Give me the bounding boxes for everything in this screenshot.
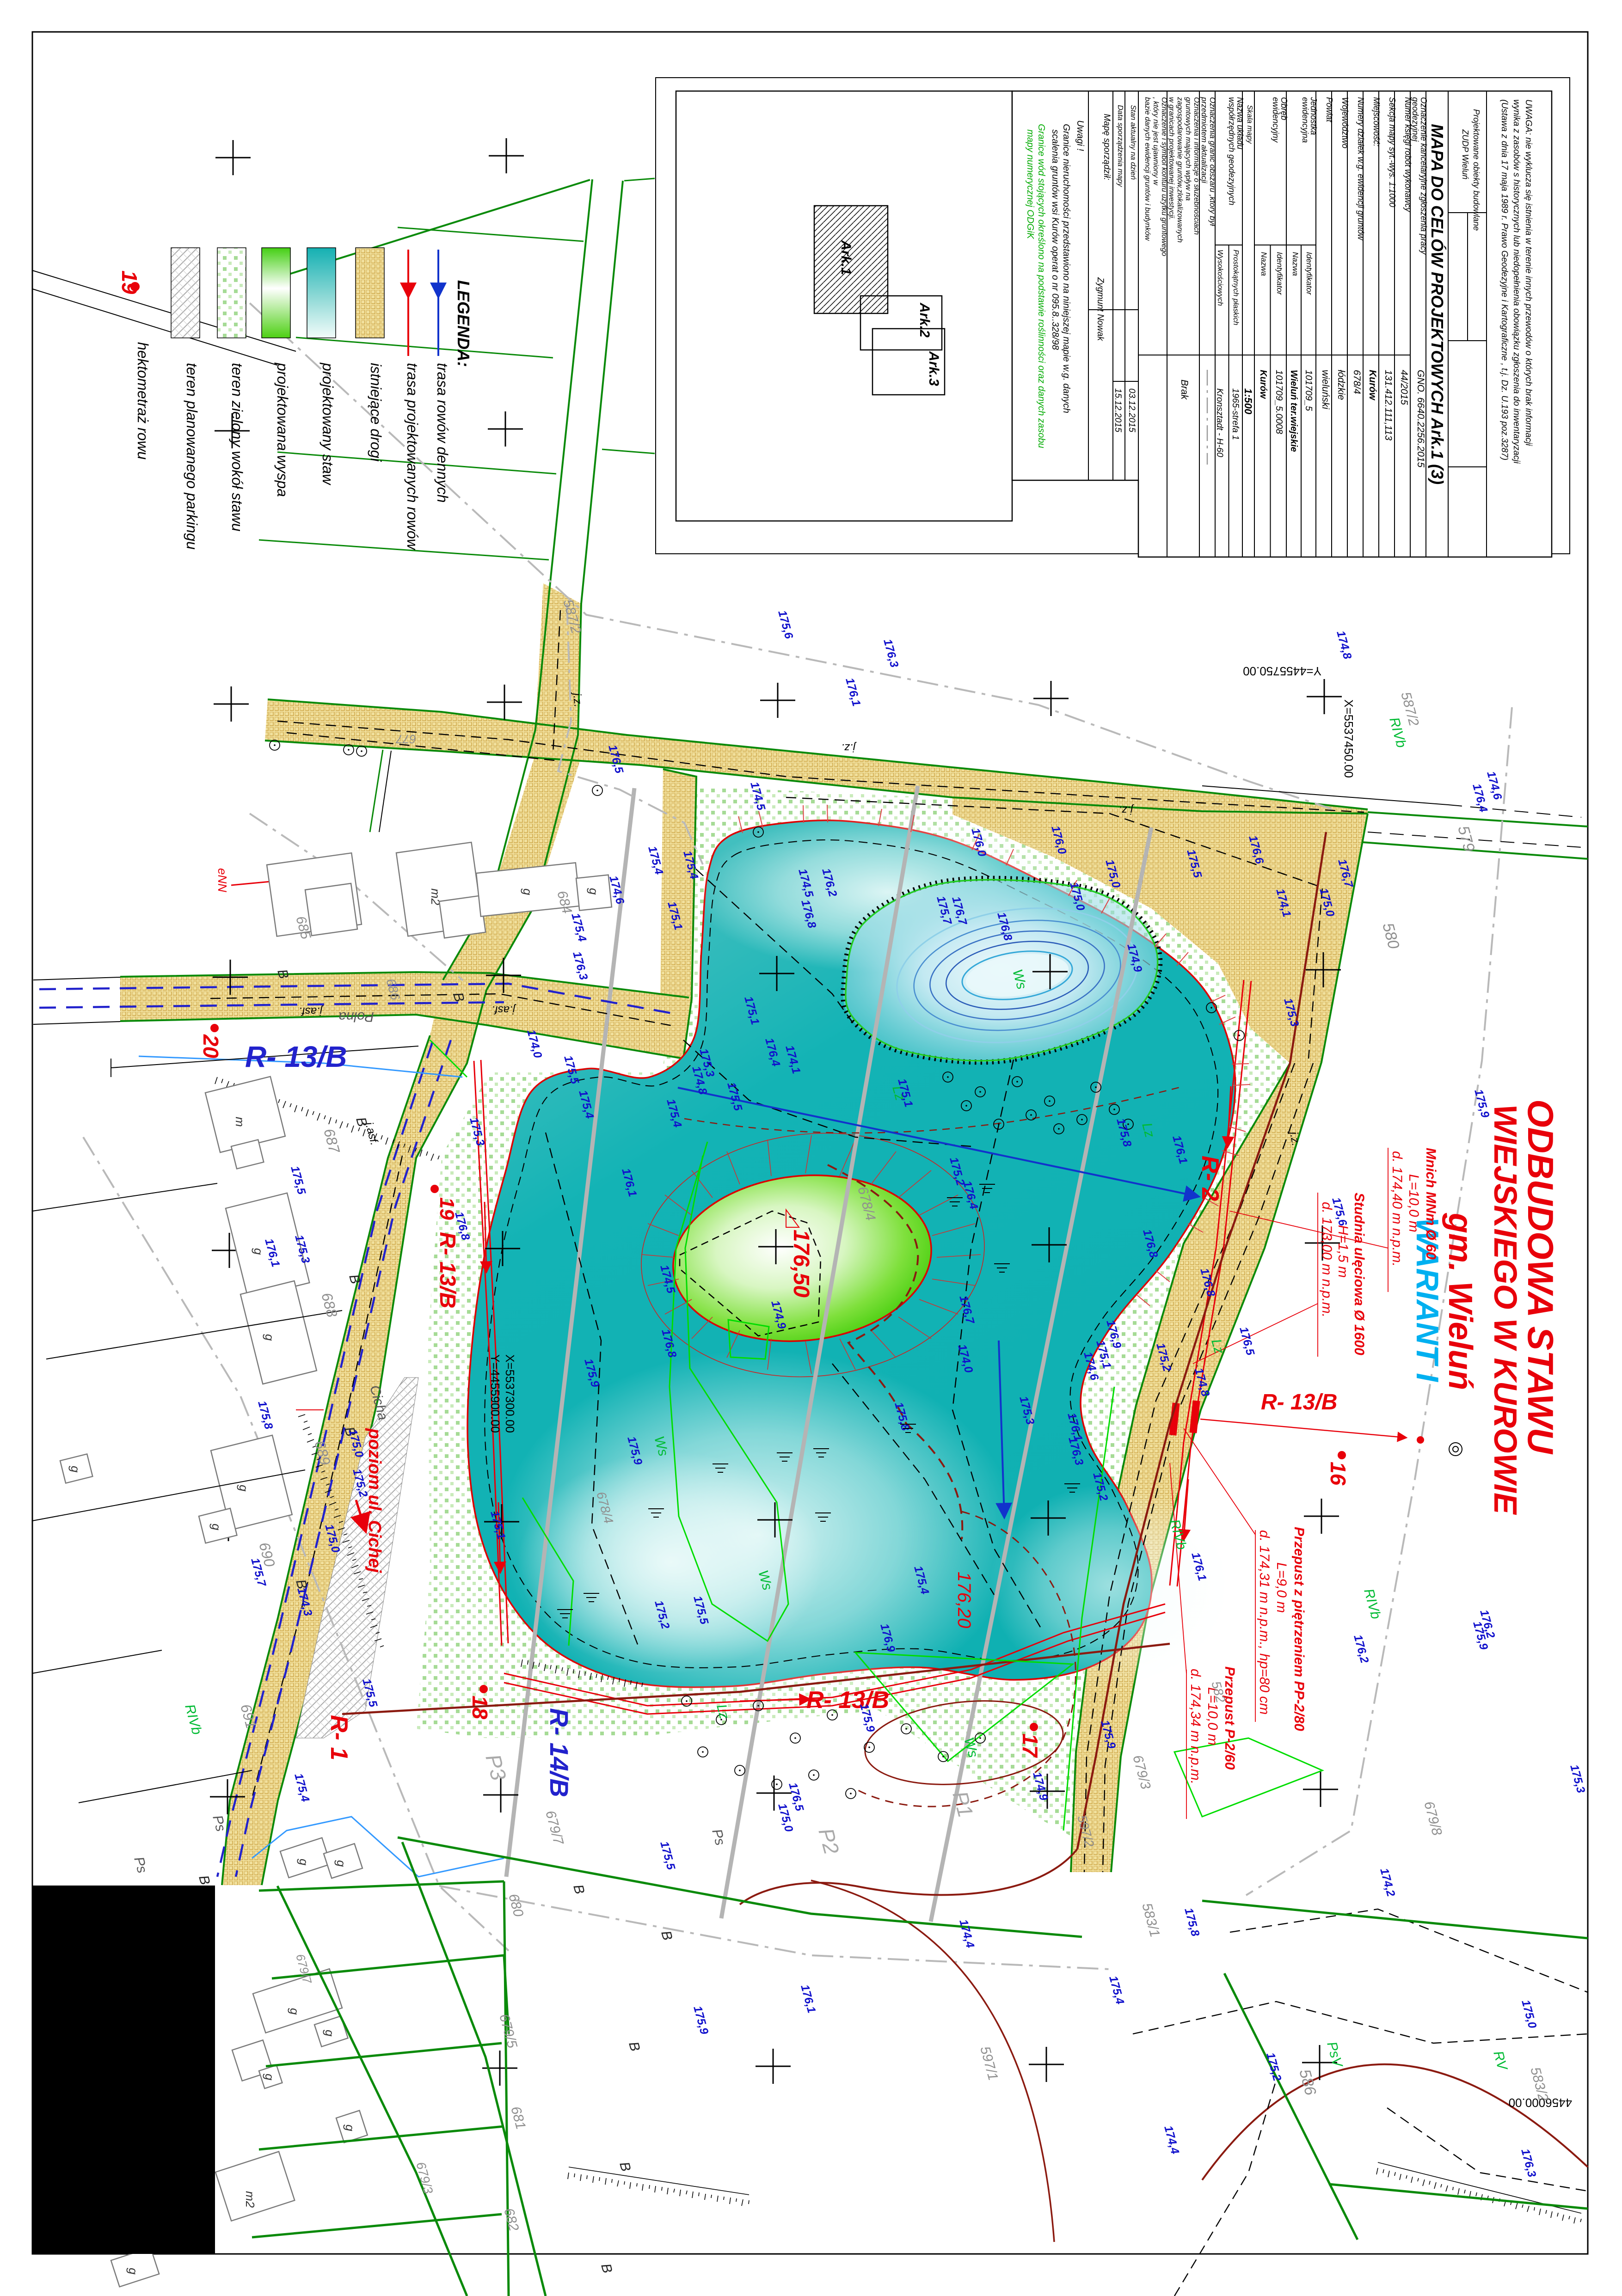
svg-text:j.asf.: j.asf. <box>492 1004 516 1016</box>
svg-text:Przepust z piętrzeniem PP-2/80: Przepust z piętrzeniem PP-2/80 <box>1291 1527 1307 1731</box>
svg-text:Ps: Ps <box>209 1813 228 1833</box>
svg-text:g: g <box>343 2125 357 2131</box>
svg-text:Zygmunt Nowak: Zygmunt Nowak <box>1095 277 1105 342</box>
svg-text:03.12.2015: 03.12.2015 <box>1127 388 1137 433</box>
svg-text:175,2: 175,2 <box>1264 2051 1284 2082</box>
svg-text:d. 174,34 m n.p.m.: d. 174,34 m n.p.m. <box>1188 1669 1203 1784</box>
svg-text:teren zielony wokół stawu: teren zielony wokół stawu <box>229 363 246 532</box>
svg-text:Oznaczenie kancelaryjne zgłosz: Oznaczenie kancelaryjne zgłoszenia pracy <box>1419 97 1428 255</box>
svg-text:Data sporządzenia mapy: Data sporządzenia mapy <box>1116 105 1124 187</box>
svg-text:RIVb: RIVb <box>182 1702 204 1736</box>
svg-text:ewidencyjny: ewidencyjny <box>1271 97 1280 143</box>
svg-text:175,4: 175,4 <box>569 912 589 943</box>
svg-text:Jednostka: Jednostka <box>1309 97 1318 135</box>
svg-text:łódzkie: łódzkie <box>1336 370 1346 400</box>
svg-text:UWAGA: nie wyklucza się istnie: UWAGA: nie wyklucza się istnienia w tere… <box>1524 99 1533 446</box>
svg-text:P3: P3 <box>481 1751 511 1783</box>
svg-text:Powiat: Powiat <box>1325 97 1334 122</box>
svg-text:X=5537450.00: X=5537450.00 <box>1342 699 1356 778</box>
svg-text:176,3: 176,3 <box>881 637 901 669</box>
svg-text:580: 580 <box>1379 921 1402 951</box>
svg-text:688: 688 <box>318 1291 341 1319</box>
svg-text:Studnia ulęciowa Ø 1600: Studnia ulęciowa Ø 1600 <box>1352 1193 1367 1355</box>
svg-text:zagospodarowanie gruntów,zloka: zagospodarowanie gruntów,zlokalizowanych <box>1176 97 1184 243</box>
svg-text:bazie danych ewidencji gruntów: bazie danych ewidencji gruntów i budynkó… <box>1143 97 1151 241</box>
svg-text:H=1,5 m: H=1,5 m <box>1335 1225 1351 1278</box>
svg-text:g: g <box>334 1860 348 1867</box>
svg-text:gruntowych mających wpływ na: gruntowych mających wpływ na <box>1184 97 1192 201</box>
svg-text:R- 13/B: R- 13/B <box>806 1687 889 1714</box>
svg-text:Ark.1: Ark.1 <box>838 240 854 275</box>
svg-text:20: 20 <box>199 1034 223 1059</box>
svg-text:Przepust P-2/60: Przepust P-2/60 <box>1222 1666 1237 1770</box>
svg-text:175,5: 175,5 <box>657 1840 678 1872</box>
svg-text:Nazwa: Nazwa <box>1291 252 1300 276</box>
svg-text:Uwagi !: Uwagi ! <box>1075 120 1085 151</box>
svg-text:Y=4455750.00: Y=4455750.00 <box>1243 664 1321 678</box>
svg-text:R- 13/B: R- 13/B <box>1261 1390 1337 1414</box>
svg-text:Wieluń ter.wiejskie: Wieluń ter.wiejskie <box>1289 370 1299 452</box>
svg-text:175,8: 175,8 <box>1182 1906 1202 1938</box>
svg-text:Stan aktualny na dzień: Stan aktualny na dzień <box>1129 105 1137 180</box>
svg-text:Mnich MNm Ø 60: Mnich MNm Ø 60 <box>1423 1148 1438 1260</box>
svg-text:istniejące drogi: istniejące drogi <box>368 363 384 462</box>
svg-text:Wysokościowych: Wysokościowych <box>1216 250 1224 306</box>
svg-text:L=10,0 m: L=10,0 m <box>1406 1174 1421 1232</box>
svg-text:680: 680 <box>505 1892 526 1918</box>
svg-text:Województwo: Województwo <box>1340 97 1350 148</box>
svg-text:176,1: 176,1 <box>843 676 863 708</box>
svg-text:przedmiotem aktualizacji: przedmiotem aktualizacji <box>1200 97 1209 184</box>
svg-text:687: 687 <box>320 1127 343 1155</box>
svg-text:mapy numerycznej ODGiK: mapy numerycznej ODGiK <box>1025 129 1035 239</box>
svg-text:PsV: PsV <box>1324 2040 1346 2070</box>
svg-text:scalenia gruntów wsi Kurów op: scalenia gruntów wsi Kurów operat o nr 0… <box>1050 129 1060 350</box>
svg-text:677: 677 <box>395 732 416 746</box>
svg-text:trasa projektowanych rowów: trasa projektowanych rowów <box>404 363 421 551</box>
svg-text:, który nie jest ujawniony w: , który nie jest ujawniony w <box>1152 97 1160 186</box>
svg-text:B: B <box>196 1874 213 1886</box>
svg-text:j.z.: j.z. <box>841 741 857 754</box>
svg-text:g: g <box>587 888 601 895</box>
svg-text:175,4: 175,4 <box>1106 1974 1126 2006</box>
svg-text:g: g <box>297 1859 311 1866</box>
svg-text:Granice nieruchomości przedsta: Granice nieruchomości przedstawiono na n… <box>1061 124 1071 413</box>
svg-text:Kurów: Kurów <box>1367 370 1378 401</box>
svg-text:Ps: Ps <box>709 1827 728 1847</box>
svg-text:679/7: 679/7 <box>542 1809 566 1847</box>
svg-text:(Ustawa z dnia 17 maja 1989 r.: (Ustawa z dnia 17 maja 1989 r. Prawo Geo… <box>1499 99 1509 460</box>
svg-text:1:500: 1:500 <box>1242 388 1254 415</box>
svg-text:projektowany staw: projektowany staw <box>319 362 336 485</box>
svg-text:g: g <box>263 2074 276 2081</box>
svg-text:X=5537300.00: X=5537300.00 <box>503 1354 517 1433</box>
svg-text:Kurów: Kurów <box>1258 370 1268 399</box>
svg-text:175,9: 175,9 <box>691 2004 711 2036</box>
svg-text:174,8: 174,8 <box>1334 629 1354 661</box>
svg-text:174,4: 174,4 <box>1161 2124 1181 2155</box>
svg-text:101709_5.0008: 101709_5.0008 <box>1274 370 1284 434</box>
svg-text:RV: RV <box>1490 2049 1510 2073</box>
svg-text:679/8: 679/8 <box>1421 1800 1444 1837</box>
svg-text:Ark.3: Ark.3 <box>926 351 941 386</box>
svg-text:ZUDP Wieluń: ZUDP Wieluń <box>1461 129 1470 179</box>
svg-text:projektowana wyspa: projektowana wyspa <box>274 362 291 497</box>
svg-text:j.z.: j.z. <box>1118 804 1134 816</box>
svg-text:175,4: 175,4 <box>292 1772 312 1803</box>
svg-text:P2: P2 <box>814 1825 844 1857</box>
svg-text:176,20: 176,20 <box>954 1572 974 1628</box>
svg-text:Brak: Brak <box>1179 380 1190 400</box>
svg-text:R- 13/B: R- 13/B <box>435 1232 460 1308</box>
svg-text:g: g <box>126 2268 140 2275</box>
svg-text:176,4: 176,4 <box>1470 782 1490 814</box>
svg-text:LEGENDA:: LEGENDA: <box>454 280 473 367</box>
svg-text:15.12.2015: 15.12.2015 <box>1113 388 1123 433</box>
svg-text:g: g <box>237 1485 251 1492</box>
svg-text:131.412.111,113: 131.412.111,113 <box>1383 370 1394 441</box>
svg-text:j.asf.: j.asf. <box>299 1005 324 1017</box>
svg-text:679/3: 679/3 <box>413 2161 436 2196</box>
svg-text:w granicach projektowanej inwe: w granicach projektowanej inwestycji. <box>1167 97 1175 220</box>
svg-text:Oznaczenie i symbol konturu uż: Oznaczenie i symbol konturu użytku grunt… <box>1160 97 1168 256</box>
svg-text:Oznaczenia granic obszaru ,któ: Oznaczenia granic obszaru ,który był <box>1208 97 1217 227</box>
svg-text:Miejscowość:: Miejscowość: <box>1372 97 1381 147</box>
svg-text:d. 173,00 m n.p.m.: d. 173,00 m n.p.m. <box>1319 1202 1334 1317</box>
svg-text:B: B <box>570 1883 587 1896</box>
svg-text:Numer księgi robót wykonawcy: Numer księgi robót wykonawcy <box>1403 97 1413 212</box>
svg-text:1965-strefa 1: 1965-strefa 1 <box>1230 388 1240 440</box>
svg-text:R- 1: R- 1 <box>326 1715 352 1760</box>
svg-text:Nazwa: Nazwa <box>1260 252 1268 276</box>
svg-text:teren planowanego parkingu: teren planowanego parkingu <box>184 363 200 550</box>
svg-text:679/3: 679/3 <box>1130 1753 1153 1791</box>
svg-text:Kronsztadt - H-60: Kronsztadt - H-60 <box>1215 388 1224 457</box>
svg-text:B: B <box>616 2160 633 2173</box>
svg-text:R- 2: R- 2 <box>1197 1156 1223 1201</box>
svg-text:175,5: 175,5 <box>288 1164 308 1196</box>
svg-text:Prostokątnych płaskich: Prostokątnych płaskich <box>1232 250 1240 325</box>
svg-text:Skala mapy: Skala mapy <box>1246 105 1253 144</box>
svg-text:586: 586 <box>1296 2067 1319 2097</box>
svg-text:WIEJSKIEGO W KUROWIE: WIEJSKIEGO W KUROWIE <box>1487 1104 1524 1515</box>
svg-text:Obręb: Obręb <box>1279 97 1289 120</box>
svg-text:eNN: eNN <box>215 868 229 892</box>
svg-text:Sekcja mapy syt.-wys. 1:1000: Sekcja mapy syt.-wys. 1:1000 <box>1388 97 1397 207</box>
svg-text:L=9,0 m: L=9,0 m <box>1274 1562 1289 1613</box>
svg-text:Granice wód stojących określon: Granice wód stojących określono na podst… <box>1036 124 1046 448</box>
svg-text:poziom ul. Cichej: poziom ul. Cichej <box>365 1428 384 1574</box>
svg-text:176,2: 176,2 <box>1351 1633 1371 1665</box>
svg-text:176,3: 176,3 <box>1518 2147 1538 2179</box>
svg-text:19: 19 <box>117 270 141 294</box>
svg-text:Ps: Ps <box>131 1855 150 1874</box>
svg-text:175,8: 175,8 <box>255 1399 275 1431</box>
svg-text:g: g <box>323 2030 337 2037</box>
svg-text:176,3: 176,3 <box>570 950 590 981</box>
svg-text:174,6: 174,6 <box>1484 770 1505 802</box>
svg-text:trasa rowów dennych: trasa rowów dennych <box>434 363 451 502</box>
svg-text:g: g <box>252 1248 265 1255</box>
svg-text:Ark.2: Ark.2 <box>917 302 932 337</box>
svg-text:176,1: 176,1 <box>798 1983 818 2014</box>
svg-text:Oznaczenia i informacje o służ: Oznaczenia i informacje o służebnościach <box>1192 97 1200 235</box>
svg-text:g: g <box>263 1334 276 1341</box>
svg-text:B: B <box>658 1929 675 1942</box>
svg-text:583/1: 583/1 <box>1139 1901 1162 1939</box>
svg-text:ODBUDOWA STAWU: ODBUDOWA STAWU <box>1520 1099 1561 1455</box>
svg-text:R- 14/B: R- 14/B <box>545 1708 574 1797</box>
svg-text:d. 174,31 m n.p.m., hp=80 cm: d. 174,31 m n.p.m., hp=80 cm <box>1257 1530 1272 1714</box>
svg-text:17: 17 <box>1018 1733 1042 1758</box>
svg-text:MAPA DO CELÓW PROJEKTOWYCH Ar: MAPA DO CELÓW PROJEKTOWYCH Ark.1 (3) <box>1428 124 1447 484</box>
svg-text:m: m <box>233 1117 247 1127</box>
svg-text:Y=4455900.00: Y=4455900.00 <box>488 1354 502 1433</box>
svg-text:B: B <box>598 2262 615 2275</box>
svg-text:Nazwa układu: Nazwa układu <box>1235 97 1245 149</box>
svg-text:ewidencyjna: ewidencyjna <box>1301 97 1310 143</box>
svg-text:d. 174,40 m n.p.m.: d. 174,40 m n.p.m. <box>1389 1151 1405 1267</box>
svg-text:wynika z zasobów s historyczny: wynika z zasobów s historycznych lub nie… <box>1511 99 1521 464</box>
svg-text:wieluński: wieluński <box>1320 370 1331 410</box>
svg-text:16: 16 <box>1326 1462 1350 1486</box>
svg-text:175,6: 175,6 <box>775 609 796 641</box>
svg-text:Mapę sporządził:: Mapę sporządził: <box>1102 114 1112 180</box>
svg-text:współrzędnych geodezyjnych: współrzędnych geodezyjnych <box>1227 97 1236 205</box>
svg-text:Identyfikator: Identyfikator <box>1305 252 1314 295</box>
svg-text:m2: m2 <box>243 2191 257 2208</box>
svg-text:g: g <box>209 1524 223 1531</box>
svg-text:j.z.: j.z. <box>571 691 584 708</box>
svg-text:176,50: 176,50 <box>789 1230 813 1298</box>
svg-text:681: 681 <box>508 2105 528 2131</box>
svg-text:174,4: 174,4 <box>957 1918 977 1949</box>
svg-text:hektometraż rowu: hektometraż rowu <box>135 342 151 460</box>
svg-text:174,2: 174,2 <box>1377 1867 1397 1898</box>
svg-text:Polna: Polna <box>338 1009 374 1024</box>
svg-text:R- 13/B: R- 13/B <box>245 1040 347 1073</box>
svg-text:597/1: 597/1 <box>977 2045 1001 2082</box>
svg-text:101709_5: 101709_5 <box>1303 370 1314 411</box>
svg-text:175,0: 175,0 <box>1519 1998 1539 2030</box>
svg-text:44/2015: 44/2015 <box>1399 370 1409 405</box>
svg-text:g: g <box>521 888 535 895</box>
svg-text:Numery działek w.g. ewidencji: Numery działek w.g. ewidencji gruntów <box>1356 97 1365 240</box>
svg-text:Identyfikator: Identyfikator <box>1275 252 1284 295</box>
svg-text:GNO. 6640.2256.2015: GNO. 6640.2256.2015 <box>1415 370 1426 468</box>
svg-text:g: g <box>68 1466 82 1473</box>
svg-text:B: B <box>626 2040 643 2053</box>
svg-text:682: 682 <box>501 2206 522 2233</box>
svg-text:g: g <box>288 2008 301 2015</box>
svg-text:RIVb: RIVb <box>1361 1587 1383 1621</box>
svg-text:gm. Wieluń: gm. Wieluń <box>1442 1212 1479 1390</box>
svg-text:678/4: 678/4 <box>1352 370 1362 394</box>
svg-text:175,3: 175,3 <box>1567 1763 1587 1794</box>
